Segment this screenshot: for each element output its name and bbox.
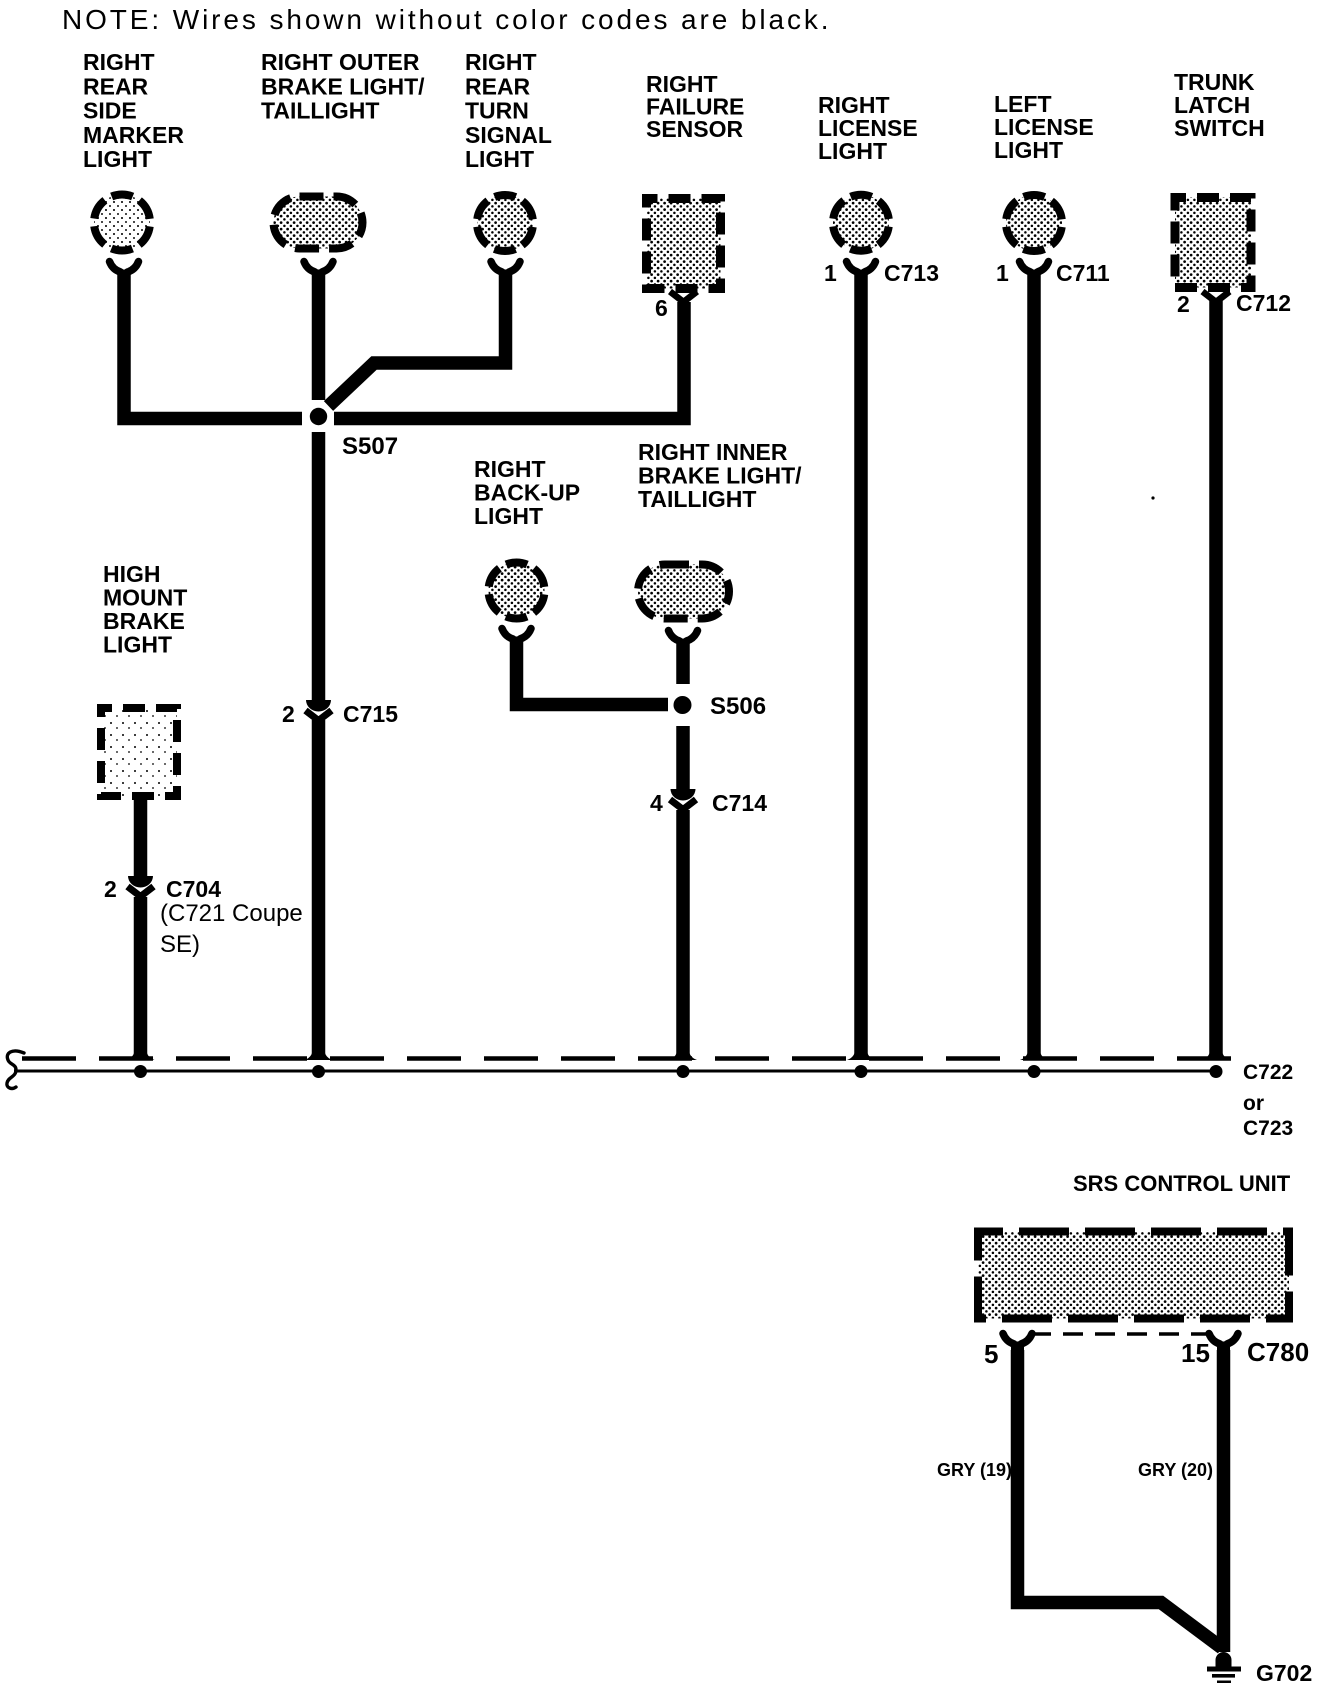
svg-text:SENSOR: SENSOR xyxy=(646,116,744,142)
svg-text:REAR: REAR xyxy=(83,73,149,99)
svg-text:SRS CONTROL UNIT: SRS CONTROL UNIT xyxy=(1073,1171,1291,1196)
svg-text:TURN: TURN xyxy=(465,98,529,124)
svg-text:GRY (20): GRY (20) xyxy=(1138,1460,1213,1480)
svg-text:BRAKE: BRAKE xyxy=(103,608,185,634)
svg-text:S507: S507 xyxy=(342,433,398,460)
svg-text:RIGHT INNER: RIGHT INNER xyxy=(638,439,788,465)
svg-text:SIDE: SIDE xyxy=(83,98,137,124)
svg-text:SE): SE) xyxy=(160,931,200,958)
svg-text:LIGHT: LIGHT xyxy=(465,146,534,172)
svg-text:6: 6 xyxy=(655,295,668,321)
svg-text:MOUNT: MOUNT xyxy=(103,585,187,611)
svg-text:5: 5 xyxy=(984,1339,998,1369)
svg-text:G702: G702 xyxy=(1256,1660,1312,1686)
svg-text:BACK-UP: BACK-UP xyxy=(474,480,580,506)
svg-text:TAILLIGHT: TAILLIGHT xyxy=(638,486,756,512)
svg-text:LIGHT: LIGHT xyxy=(994,137,1063,163)
svg-text:HIGH: HIGH xyxy=(103,561,161,587)
svg-text:C723: C723 xyxy=(1243,1117,1293,1140)
svg-text:C715: C715 xyxy=(343,701,398,727)
svg-text:S506: S506 xyxy=(710,693,766,720)
svg-text:RIGHT: RIGHT xyxy=(474,456,546,482)
svg-text:RIGHT: RIGHT xyxy=(465,49,537,75)
svg-text:BRAKE LIGHT/: BRAKE LIGHT/ xyxy=(638,463,802,489)
svg-text:BRAKE LIGHT/: BRAKE LIGHT/ xyxy=(261,73,425,99)
svg-text:C712: C712 xyxy=(1236,290,1291,316)
svg-text:2: 2 xyxy=(104,876,117,902)
svg-text:(C721 Coupe: (C721 Coupe xyxy=(160,900,303,927)
svg-text:C704: C704 xyxy=(166,876,221,902)
svg-text:LIGHT: LIGHT xyxy=(83,146,152,172)
svg-text:SIGNAL: SIGNAL xyxy=(465,122,552,148)
svg-text:15: 15 xyxy=(1181,1338,1210,1368)
svg-text:or: or xyxy=(1243,1092,1264,1115)
svg-text:C713: C713 xyxy=(884,260,939,286)
svg-text:C714: C714 xyxy=(712,790,767,816)
svg-text:TAILLIGHT: TAILLIGHT xyxy=(261,98,379,124)
svg-text:C711: C711 xyxy=(1056,260,1110,286)
svg-text:REAR: REAR xyxy=(465,73,531,99)
svg-text:GRY (19): GRY (19) xyxy=(937,1460,1012,1480)
svg-text:LIGHT: LIGHT xyxy=(103,632,172,658)
svg-text:1: 1 xyxy=(824,260,837,286)
svg-text:NOTE: Wires shown without colo: NOTE: Wires shown without color codes ar… xyxy=(62,4,831,35)
svg-text:LIGHT: LIGHT xyxy=(818,138,887,164)
svg-text:SWITCH: SWITCH xyxy=(1174,115,1265,141)
svg-text:RIGHT: RIGHT xyxy=(83,49,155,75)
svg-text:RIGHT OUTER: RIGHT OUTER xyxy=(261,49,420,75)
svg-text:1: 1 xyxy=(996,260,1009,286)
svg-text:C722: C722 xyxy=(1243,1061,1293,1084)
svg-text:LIGHT: LIGHT xyxy=(474,503,543,529)
svg-text:2: 2 xyxy=(282,701,295,727)
svg-text:4: 4 xyxy=(650,790,663,816)
svg-text:2: 2 xyxy=(1177,291,1190,317)
svg-text:C780: C780 xyxy=(1247,1337,1309,1367)
svg-text:MARKER: MARKER xyxy=(83,122,184,148)
